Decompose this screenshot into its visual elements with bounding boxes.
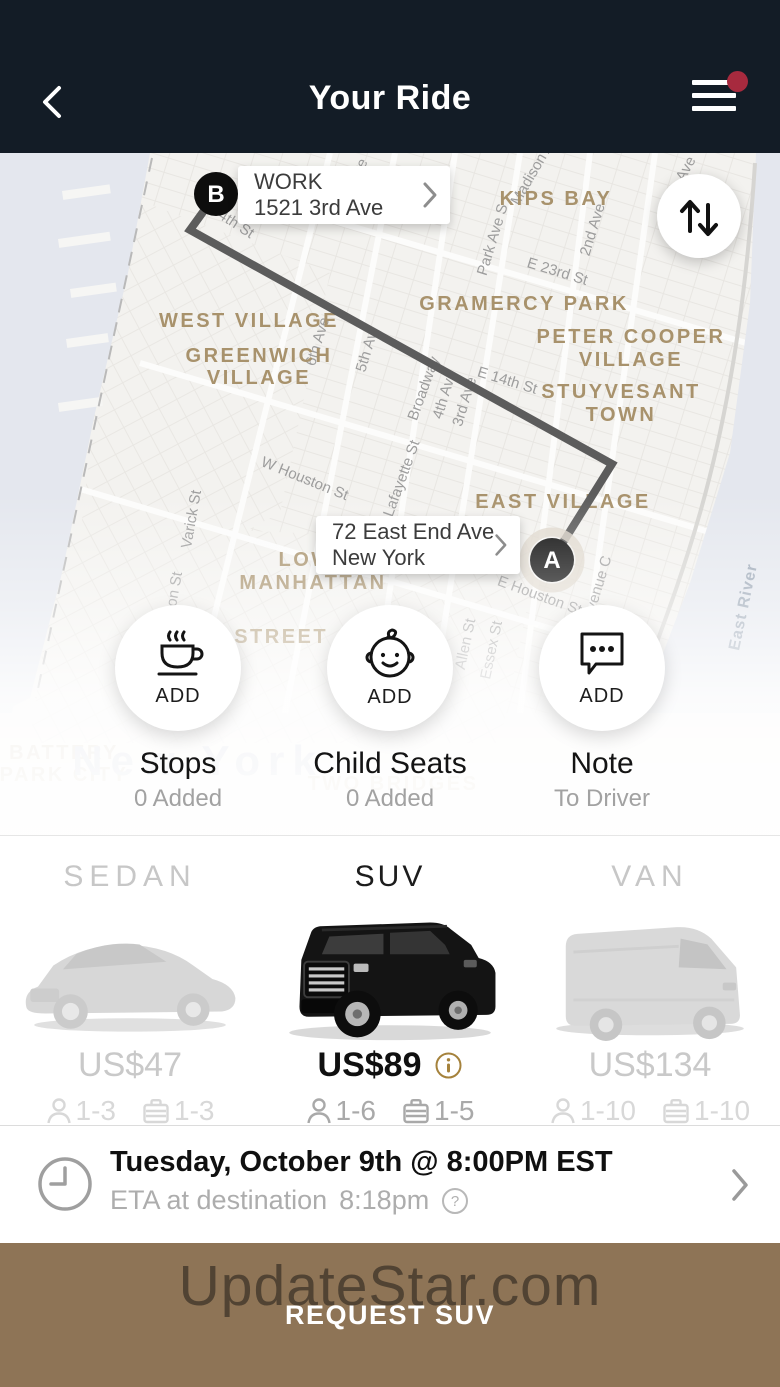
chevron-right-icon [494,531,508,559]
request-footer[interactable]: UpdateStar.com REQUEST SUV [0,1243,780,1387]
add-note-option[interactable]: ADD Note To Driver [507,605,697,813]
passenger-icon [46,1097,72,1125]
eta-label: ETA at destination [110,1185,327,1216]
luggage-icon [662,1098,690,1124]
pickup-datetime: Tuesday, October 9th @ 8:00PM EST [110,1146,613,1179]
ride-options-row: ADD Stops 0 Added [0,605,780,813]
eta-line: ETA at destination 8:18pm ? [110,1185,469,1216]
address-b-line2: 1521 3rd Ave [254,195,422,221]
add-note-button[interactable]: ADD [539,605,665,731]
map-area-label: TOWN [586,404,657,426]
luggage-icon [402,1098,430,1124]
note-title: Note [507,747,697,781]
your-ride-screen: Your Ride [0,0,780,1387]
van-image [520,898,780,1042]
menu-button[interactable] [692,80,740,122]
sedan-passenger-capacity: 1-3 [46,1095,116,1127]
map-area-label: KIPS BAY [500,188,613,210]
map-area-label: GRAMERCY PARK [419,293,629,315]
chevron-right-icon[interactable] [730,1167,750,1203]
sedan-price: US$47 [78,1046,182,1085]
add-child-seats-button[interactable]: ADD [327,605,453,731]
sedan-luggage-capacity: 1-3 [142,1095,214,1127]
pickup-b-address-card[interactable]: WORK 1521 3rd Ave [238,166,450,224]
svg-text:?: ? [451,1193,459,1210]
schedule-row[interactable]: Tuesday, October 9th @ 8:00PM EST ETA at… [0,1125,780,1243]
svg-text:B: B [207,181,224,208]
note-subtitle: To Driver [507,785,697,813]
map-area-label: PETER COOPER [537,326,726,348]
swap-locations-button[interactable] [657,174,741,258]
suv-image [260,898,520,1042]
vehicle-sedan[interactable]: SEDAN US$47 [0,836,260,1125]
suv-passenger-capacity: 1-6 [306,1095,376,1127]
pin-a: A [524,532,580,588]
suv-price: US$89 [318,1046,422,1085]
luggage-icon [142,1098,170,1124]
page-title: Your Ride [0,79,780,118]
map-area-label: EAST VILLAGE [475,491,651,513]
map-area-label: GREENWICH [186,345,333,367]
address-b-line1: WORK [254,169,422,195]
chevron-right-icon [422,181,438,209]
passenger-icon [550,1097,576,1125]
svg-text:A: A [543,547,560,574]
add-label: ADD [579,685,624,708]
swap-arrows-icon [676,193,722,239]
coffee-cup-icon [150,628,206,680]
passenger-icon [306,1097,332,1125]
help-icon[interactable]: ? [441,1187,469,1215]
van-luggage-capacity: 1-10 [662,1095,750,1127]
suv-luggage-capacity: 1-5 [402,1095,474,1127]
chat-bubble-icon [574,628,630,680]
add-label: ADD [155,685,200,708]
request-suv-button[interactable]: REQUEST SUV [0,1300,780,1331]
baby-icon [362,627,418,681]
sedan-image [0,898,260,1042]
van-price: US$134 [589,1046,712,1085]
map-area-label: VILLAGE [579,349,683,371]
vehicle-suv[interactable]: SUV [260,836,520,1125]
vehicle-van[interactable]: VAN US$134 [520,836,780,1125]
vehicle-selector: SEDAN US$47 [0,835,780,1125]
add-stops-button[interactable]: ADD [115,605,241,731]
map-area-label: WEST VILLAGE [159,310,339,332]
add-stops-option[interactable]: ADD Stops 0 Added [83,605,273,813]
add-child-seats-option[interactable]: ADD Child Seats 0 Added [295,605,485,813]
map-area-label: VILLAGE [207,367,311,389]
van-label: VAN [520,860,780,894]
map-section: W 4th StAveMadison AveAvePark Ave S2nd A… [0,153,780,835]
map-area-label: STUYVESANT [541,381,700,403]
child-seats-title: Child Seats [295,747,485,781]
destination-a-address-card[interactable]: 72 East End Ave New York [316,516,520,574]
address-a-line1: 72 East End Ave [332,519,494,545]
suv-label: SUV [260,860,520,894]
address-a-line2: New York [332,545,494,571]
add-label: ADD [367,686,412,709]
sedan-label: SEDAN [0,860,260,894]
clock-icon [36,1155,94,1213]
notification-badge [727,71,748,92]
map-area-label: MANHATTAN [239,572,386,594]
eta-time: 8:18pm [339,1185,429,1216]
child-seats-subtitle: 0 Added [295,785,485,813]
van-passenger-capacity: 1-10 [550,1095,636,1127]
stops-title: Stops [83,747,273,781]
info-icon[interactable] [435,1052,462,1079]
pin-b: B [194,172,238,216]
app-header: Your Ride [0,0,780,153]
stops-subtitle: 0 Added [83,785,273,813]
